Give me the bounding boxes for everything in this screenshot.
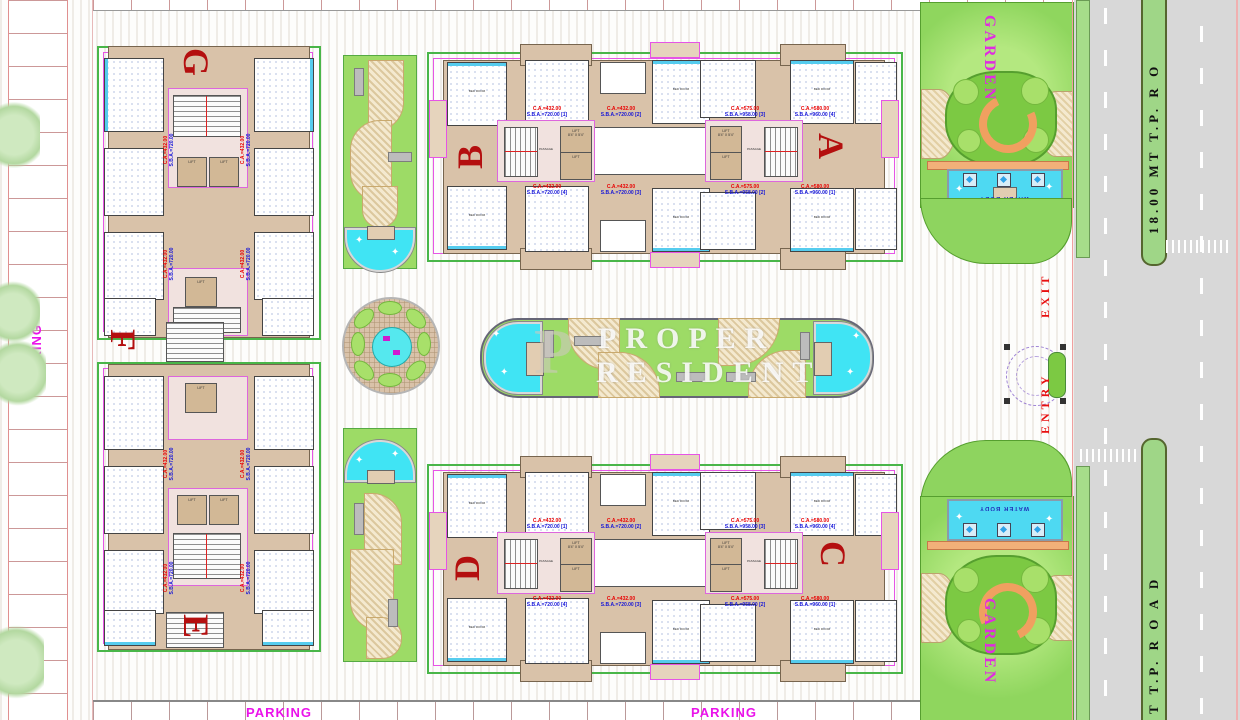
passage-label: PASSAGE — [742, 559, 766, 563]
room — [600, 632, 646, 664]
room — [104, 148, 164, 216]
lift: LIFT — [710, 564, 742, 592]
watermark-line2: RESIDENT — [596, 356, 821, 390]
balcony — [429, 512, 447, 570]
gate-post — [1004, 398, 1010, 404]
building-letter-c: C — [815, 541, 851, 567]
lift: LIFT — [560, 152, 592, 180]
apartment-annotation: C.A.=580.00S.B.A.=960.00 [1] — [786, 596, 844, 608]
parking-label-bottom-1: PARKING — [246, 705, 312, 720]
bench — [354, 503, 364, 535]
lift-label: LIFT — [197, 280, 204, 284]
bench — [388, 599, 398, 627]
building-letter-b: B — [452, 145, 488, 169]
room — [104, 376, 164, 450]
water-body-label: WATER BODY — [979, 505, 1029, 511]
lift-size: 8'4" X 5'4" — [718, 545, 734, 549]
builtup-area: S.B.A.=720.00 — [169, 236, 175, 292]
watermark-line1: PROPER — [598, 322, 775, 356]
balcony — [429, 100, 447, 158]
entry-label: ENTRY — [1038, 372, 1053, 434]
room — [600, 220, 646, 252]
garden-label-top: GARDEN — [980, 15, 998, 102]
lift-label: LIFT — [572, 155, 579, 159]
site-boundary-right — [1072, 0, 1073, 720]
lift: LIFT — [177, 157, 207, 187]
stair-core-a: LIFT8'4" X 5'4" LIFT PASSAGE — [705, 120, 803, 182]
building-letter-f: F — [105, 329, 141, 351]
apartment-annotation: C.A.=575.00S.B.A.=958.00 [3] — [716, 518, 774, 530]
balcony — [650, 664, 700, 680]
builtup-area: S.B.A.=958.00 [3] — [716, 524, 774, 530]
room: BED ROOM — [790, 188, 854, 252]
apartment-annotation: C.A.=432.00S.B.A.=720.00 — [163, 550, 175, 606]
tree — [0, 90, 40, 180]
apartment-annotation: C.A.=432.00S.B.A.=720.00 — [163, 122, 175, 178]
balcony — [881, 512, 899, 570]
fountain — [997, 173, 1011, 187]
stair-core-d: PASSAGE LIFT8'4" X 5'4" LIFT — [497, 532, 595, 594]
room-label: BED ROOM — [448, 501, 506, 505]
exit-label: EXIT — [1038, 273, 1053, 318]
room — [104, 466, 164, 534]
room — [254, 466, 314, 534]
builtup-area: S.B.A.=720.00 — [246, 436, 252, 492]
room-label: BED ROOM — [448, 213, 506, 217]
lift-label: LIFT — [572, 567, 579, 571]
apartment-annotation: C.A.=432.00S.B.A.=720.00 — [240, 122, 252, 178]
apartment-annotation: C.A.=580.00S.B.A.=960.00 [4] — [786, 518, 844, 530]
entrance-stair — [166, 322, 224, 362]
lift: LIFT — [177, 495, 207, 525]
apartment-annotation: C.A.=580.00S.B.A.=960.00 [1] — [786, 184, 844, 196]
fountain-center — [372, 327, 412, 367]
lift: LIFT — [560, 564, 592, 592]
room — [600, 62, 646, 94]
building-letter-d: D — [449, 555, 485, 581]
staircase — [504, 539, 538, 589]
lift: LIFT — [185, 277, 217, 307]
stair-core-c: LIFT8'4" X 5'4" LIFT PASSAGE — [705, 532, 803, 594]
room — [104, 58, 164, 132]
fountain — [1031, 523, 1045, 537]
apartment-annotation: C.A.=432.00S.B.A.=720.00 [3] — [592, 596, 650, 608]
road-median-label-bottom: T T.P. R O A D — [1146, 576, 1162, 714]
passage-label: PASSAGE — [742, 147, 766, 151]
lift-label: LIFT — [220, 160, 227, 164]
stair-core: LIFT — [168, 376, 248, 440]
room: BED ROOM — [447, 598, 507, 662]
stair-core: LIFT LIFT — [168, 488, 248, 586]
roadside-green — [1076, 466, 1090, 720]
lightwell — [590, 539, 712, 587]
fountain — [963, 173, 977, 187]
lift: LIFT — [209, 157, 239, 187]
apartment-annotation: C.A.=432.00S.B.A.=720.00 [2] — [592, 106, 650, 118]
bench — [388, 152, 412, 162]
apartment-annotation: C.A.=575.00S.B.A.=958.00 [2] — [716, 184, 774, 196]
staircase — [764, 127, 798, 177]
builtup-area: S.B.A.=720.00 — [169, 436, 175, 492]
passage-label: PASSAGE — [534, 147, 558, 151]
builtup-area: S.B.A.=960.00 [1] — [786, 602, 844, 608]
apartment-annotation: C.A.=432.00S.B.A.=720.00 — [240, 436, 252, 492]
pool-deck — [367, 470, 395, 484]
apartment-annotation: C.A.=432.00S.B.A.=720.00 — [163, 436, 175, 492]
apartment-annotation: C.A.=432.00S.B.A.=720.00 — [240, 550, 252, 606]
builtup-area: S.B.A.=720.00 — [246, 122, 252, 178]
staircase — [173, 533, 241, 579]
apartment-annotation: C.A.=432.00S.B.A.=720.00 — [163, 236, 175, 292]
fountain — [963, 523, 977, 537]
apartment-annotation: C.A.=432.00S.B.A.=720.00 [4] — [518, 596, 576, 608]
room — [254, 376, 314, 450]
room-label: BED ROOM — [448, 89, 506, 93]
builtup-area: S.B.A.=720.00 [4] — [518, 602, 576, 608]
apartment-annotation: C.A.=575.00S.B.A.=958.00 [3] — [716, 106, 774, 118]
room — [104, 610, 156, 646]
room-label: BED ROOM — [791, 215, 853, 219]
lift: LIFT8'4" X 5'4" — [710, 126, 742, 154]
stair-core: LIFT LIFT — [168, 88, 248, 188]
watermark-logo: P — [534, 320, 573, 384]
lift-label: LIFT — [722, 155, 729, 159]
room-label: BED ROOM — [791, 499, 853, 503]
builtup-area: S.B.A.=958.00 [2] — [716, 602, 774, 608]
apartment-annotation: C.A.=432.00S.B.A.=720.00 [4] — [518, 184, 576, 196]
builtup-area: S.B.A.=960.00 [4] — [786, 524, 844, 530]
room — [262, 610, 314, 646]
room — [104, 550, 164, 614]
builtup-area: S.B.A.=720.00 [1] — [518, 112, 576, 118]
builtup-area: S.B.A.=720.00 [4] — [518, 190, 576, 196]
lift-label: LIFT — [188, 498, 195, 502]
play-area — [945, 555, 1057, 655]
room — [254, 58, 314, 132]
lift: LIFT8'4" X 5'4" — [560, 126, 592, 154]
play-area — [945, 71, 1057, 167]
water-body-bottom: ✦✦ WATER BODY — [947, 499, 1063, 541]
balcony — [881, 100, 899, 158]
passage-label: PASSAGE — [534, 559, 558, 563]
balcony — [650, 252, 700, 268]
lift: LIFT8'4" X 5'4" — [560, 538, 592, 566]
site-boundary-left — [92, 0, 93, 720]
lift-label: LIFT — [197, 386, 204, 390]
bench — [354, 68, 364, 96]
room — [254, 148, 314, 216]
builtup-area: S.B.A.=720.00 — [169, 550, 175, 606]
road-median-label-top: 18.00 MT T.P. R O — [1146, 63, 1162, 234]
circular-plaza — [342, 297, 440, 395]
lane-marking — [1200, 26, 1203, 720]
room — [262, 298, 314, 336]
lightwell — [590, 127, 712, 175]
apartment-annotation: C.A.=580.00S.B.A.=960.00 [4] — [786, 106, 844, 118]
room-label: BED ROOM — [791, 87, 853, 91]
lift: LIFT — [209, 495, 239, 525]
builtup-area: S.B.A.=720.00 — [246, 236, 252, 292]
lift-label: LIFT — [220, 498, 227, 502]
builtup-area: S.B.A.=720.00 [3] — [592, 190, 650, 196]
room-label: BED ROOM — [791, 627, 853, 631]
water-feature: ✦✦ — [814, 322, 872, 394]
room — [254, 232, 314, 300]
site-plan: PARKING PARKING PARKING LIFT LIFT LIFT C… — [0, 0, 1240, 720]
gate-post — [1060, 398, 1066, 404]
tree — [0, 330, 46, 416]
lift: LIFT — [185, 383, 217, 413]
lift-size: 8'4" X 5'4" — [568, 133, 584, 137]
apartment-annotation: C.A.=432.00S.B.A.=720.00 [2] — [592, 518, 650, 530]
building-letter-a: A — [813, 133, 849, 159]
gate-post — [1004, 344, 1010, 350]
apartment-annotation: C.A.=575.00S.B.A.=958.00 [2] — [716, 596, 774, 608]
lift-label: LIFT — [188, 160, 195, 164]
room — [600, 474, 646, 506]
lift-label: LIFT — [722, 567, 729, 571]
lift: LIFT — [710, 152, 742, 180]
room — [700, 604, 756, 662]
lift-size: 8'4" X 5'4" — [568, 545, 584, 549]
builtup-area: S.B.A.=960.00 [4] — [786, 112, 844, 118]
garden-path — [362, 186, 398, 228]
builtup-area: S.B.A.=720.00 [2] — [592, 112, 650, 118]
balcony — [650, 454, 700, 470]
lift-size: 8'4" X 5'4" — [718, 133, 734, 137]
room — [855, 188, 897, 250]
staircase — [504, 127, 538, 177]
deck-edge — [927, 541, 1069, 550]
balcony — [650, 42, 700, 58]
builtup-area: S.B.A.=720.00 [2] — [592, 524, 650, 530]
building-letter-g: G — [178, 48, 214, 76]
parking-label-bottom-2: PARKING — [691, 705, 757, 720]
room: BED ROOM — [447, 474, 507, 538]
builtup-area: S.B.A.=720.00 — [246, 550, 252, 606]
staircase — [173, 95, 241, 137]
builtup-area: S.B.A.=720.00 [1] — [518, 524, 576, 530]
fountain — [1031, 173, 1045, 187]
lift: LIFT8'4" X 5'4" — [710, 538, 742, 566]
builtup-area: S.B.A.=960.00 [1] — [786, 190, 844, 196]
room — [700, 192, 756, 250]
staircase — [764, 539, 798, 589]
fountain — [997, 523, 1011, 537]
room — [254, 550, 314, 614]
room — [104, 232, 164, 300]
stair-core-b: PASSAGE LIFT8'4" X 5'4" LIFT — [497, 120, 595, 182]
apartment-annotation: C.A.=432.00S.B.A.=720.00 [1] — [518, 106, 576, 118]
building-letter-e: E — [178, 614, 214, 638]
road-edge-line — [1236, 0, 1238, 720]
room — [855, 600, 897, 662]
apartment-annotation: C.A.=432.00S.B.A.=720.00 [3] — [592, 184, 650, 196]
builtup-area: S.B.A.=720.00 — [169, 122, 175, 178]
lane-marking — [1104, 8, 1107, 712]
roadside-green — [1076, 0, 1090, 258]
builtup-area: S.B.A.=958.00 [2] — [716, 190, 774, 196]
builtup-area: S.B.A.=958.00 [3] — [716, 112, 774, 118]
builtup-area: S.B.A.=720.00 [3] — [592, 602, 650, 608]
gate-post — [1060, 344, 1066, 350]
garden-label-bottom: GARDEN — [980, 598, 998, 685]
apartment-annotation: C.A.=432.00S.B.A.=720.00 [1] — [518, 518, 576, 530]
room: BED ROOM — [790, 600, 854, 664]
apartment-annotation: C.A.=432.00S.B.A.=720.00 — [240, 236, 252, 292]
room: BED ROOM — [447, 186, 507, 250]
pool-deck — [367, 226, 395, 240]
room: BED ROOM — [447, 62, 507, 126]
tree — [0, 612, 44, 712]
room-label: BED ROOM — [448, 625, 506, 629]
